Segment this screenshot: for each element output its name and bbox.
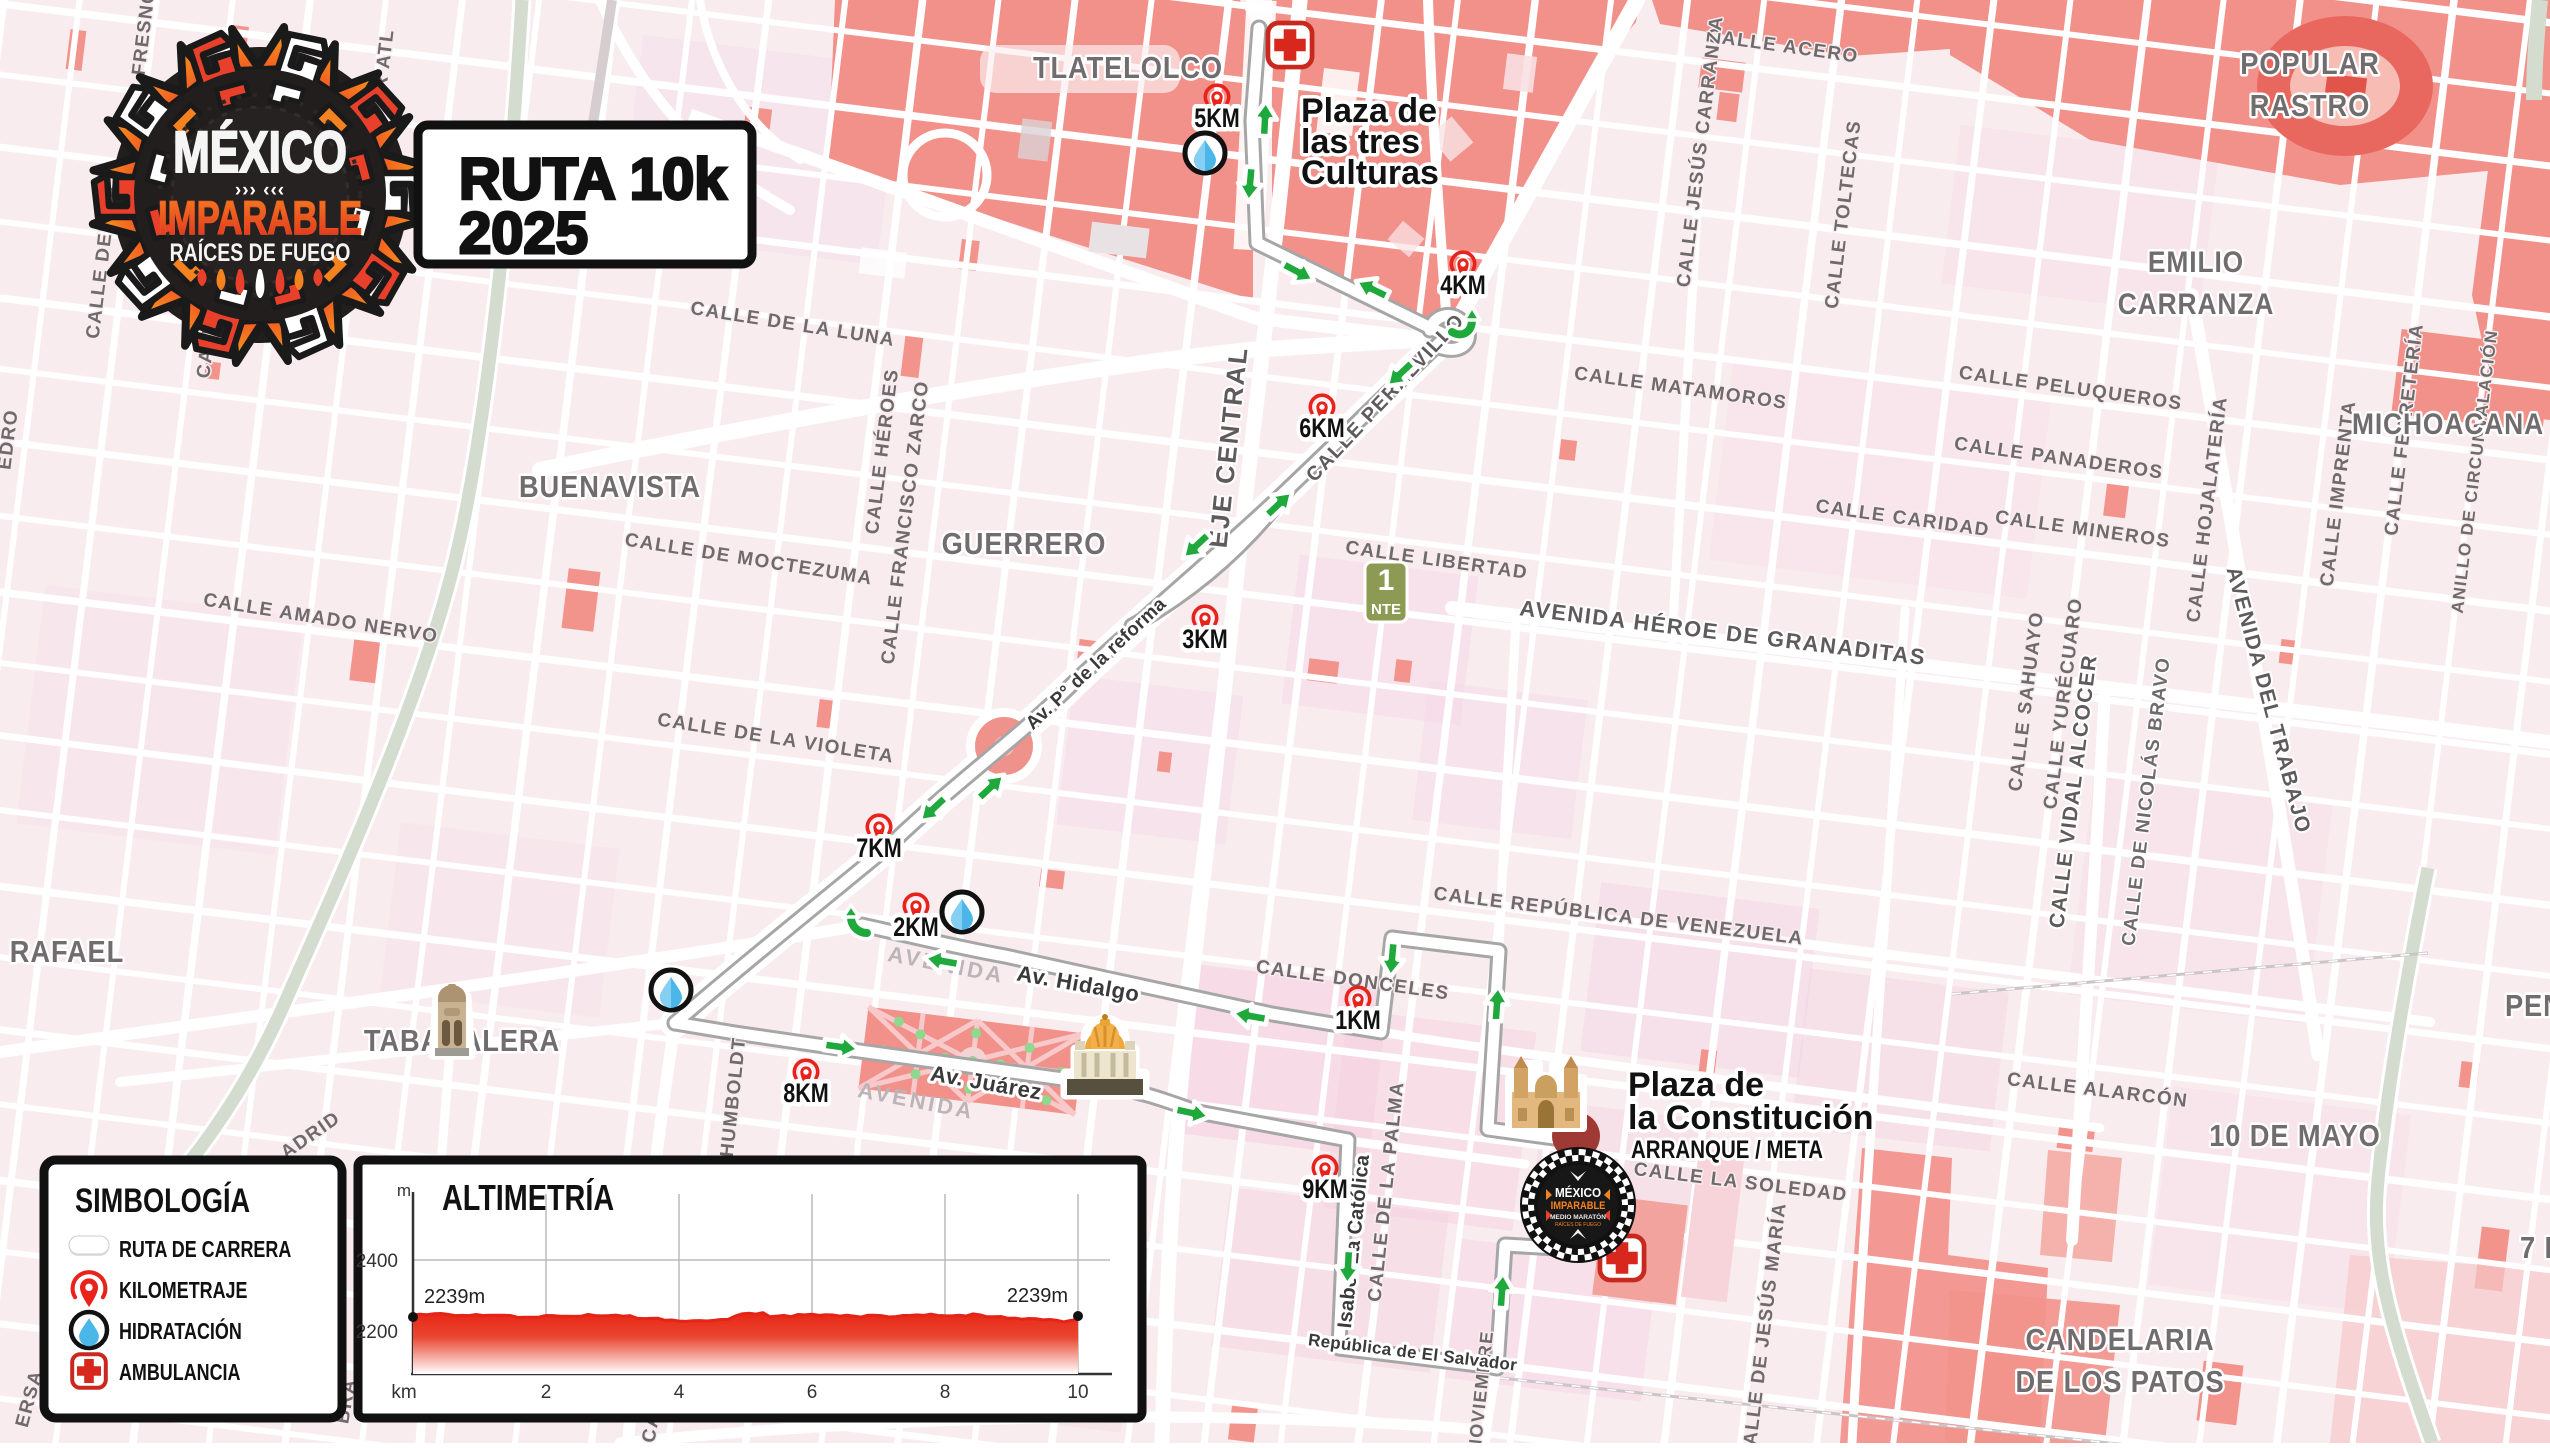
svg-text:EMILIO: EMILIO: [2148, 244, 2244, 278]
svg-text:DE LOS PATOS: DE LOS PATOS: [2015, 1365, 2224, 1399]
svg-text:8KM: 8KM: [783, 1079, 829, 1109]
svg-text:2025: 2025: [459, 201, 588, 266]
svg-text:6: 6: [807, 1382, 818, 1403]
svg-text:1: 1: [1378, 564, 1395, 597]
svg-text:2KM: 2KM: [893, 913, 939, 943]
svg-text:ALTIMETRÍA: ALTIMETRÍA: [442, 1177, 614, 1218]
svg-text:2200: 2200: [356, 1322, 398, 1343]
svg-text:MEDIO MARATÓN: MEDIO MARATÓN: [1550, 1212, 1606, 1221]
svg-text:9KM: 9KM: [1302, 1175, 1348, 1205]
svg-text:7KM: 7KM: [856, 834, 902, 864]
svg-text:7 DE: 7 DE: [2520, 1231, 2550, 1265]
svg-text:HIDRATACIÓN: HIDRATACIÓN: [119, 1318, 242, 1345]
svg-text:la Constitución: la Constitución: [1628, 1099, 1874, 1137]
svg-text:10 DE MAYO: 10 DE MAYO: [2209, 1119, 2380, 1153]
svg-text:MICHOACANA: MICHOACANA: [2352, 406, 2544, 440]
svg-text:RAÍCES DE FUEGO: RAÍCES DE FUEGO: [1555, 1221, 1601, 1228]
svg-text:8: 8: [940, 1382, 951, 1403]
svg-text:2400: 2400: [356, 1251, 398, 1272]
svg-text:6KM: 6KM: [1299, 414, 1345, 444]
svg-text:2: 2: [541, 1382, 552, 1403]
svg-text:BUENAVISTA: BUENAVISTA: [519, 470, 701, 504]
svg-text:km: km: [391, 1382, 416, 1403]
svg-text:RASTRO: RASTRO: [2250, 89, 2370, 123]
svg-text:CARRANZA: CARRANZA: [2118, 286, 2275, 320]
svg-text:4KM: 4KM: [1440, 271, 1486, 301]
svg-text:2239m: 2239m: [1007, 1285, 1068, 1307]
svg-text:PENITENCIARÍA: PENITENCIARÍA: [2505, 987, 2550, 1023]
svg-text:10: 10: [1067, 1382, 1088, 1403]
svg-text:3KM: 3KM: [1182, 625, 1228, 655]
svg-text:5KM: 5KM: [1194, 104, 1240, 134]
svg-text:1KM: 1KM: [1335, 1006, 1381, 1036]
svg-text:KILOMETRAJE: KILOMETRAJE: [119, 1278, 247, 1304]
svg-text:MÉXICO: MÉXICO: [173, 119, 347, 184]
svg-text:POPULAR: POPULAR: [2240, 47, 2379, 81]
svg-text:IMPARABLE: IMPARABLE: [158, 192, 362, 244]
svg-text:RAÍCES DE FUEGO: RAÍCES DE FUEGO: [170, 239, 351, 267]
svg-text:RAFAEL: RAFAEL: [10, 935, 124, 969]
svg-text:RUTA DE CARRERA: RUTA DE CARRERA: [119, 1237, 291, 1263]
svg-text:AMBULANCIA: AMBULANCIA: [119, 1360, 241, 1386]
svg-text:CANDELARIA: CANDELARIA: [2025, 1323, 2214, 1357]
svg-text:GUERRERO: GUERRERO: [942, 527, 1107, 561]
svg-text:Culturas: Culturas: [1301, 154, 1439, 192]
svg-text:m: m: [397, 1181, 411, 1200]
svg-text:2239m: 2239m: [424, 1286, 485, 1308]
svg-text:TLATELOLCO: TLATELOLCO: [1033, 51, 1223, 85]
svg-text:MÉXICO: MÉXICO: [1555, 1184, 1601, 1200]
svg-text:SIMBOLOGÍA: SIMBOLOGÍA: [75, 1181, 250, 1220]
svg-text:IMPARABLE: IMPARABLE: [1551, 1200, 1606, 1212]
svg-text:ARRANQUE / META: ARRANQUE / META: [1631, 1135, 1823, 1163]
svg-text:NTE: NTE: [1371, 601, 1401, 618]
svg-text:4: 4: [674, 1382, 685, 1403]
